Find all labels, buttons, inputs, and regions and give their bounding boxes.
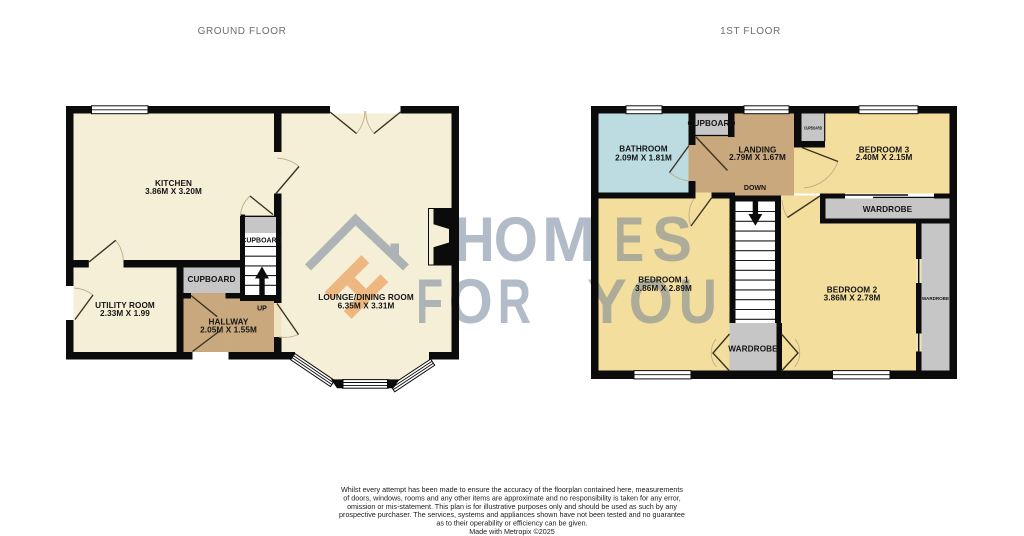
svg-text:3.86M X 3.20M: 3.86M X 3.20M: [145, 187, 202, 196]
svg-text:LOUNGE/DINING ROOM: LOUNGE/DINING ROOM: [318, 293, 414, 302]
svg-text:WARDROBE: WARDROBE: [728, 345, 778, 354]
svg-text:CUPBOARD: CUPBOARD: [187, 275, 235, 284]
svg-text:WARDROBE: WARDROBE: [922, 296, 949, 301]
svg-text:3.86M X 2.89M: 3.86M X 2.89M: [635, 284, 692, 293]
svg-text:2.05M X 1.55M: 2.05M X 1.55M: [200, 326, 257, 335]
svg-text:UP: UP: [257, 305, 267, 312]
svg-text:O: O: [494, 204, 538, 274]
svg-text:M: M: [542, 204, 596, 275]
svg-text:BATHROOM: BATHROOM: [619, 145, 667, 154]
svg-text:Made with Metropix ©2025: Made with Metropix ©2025: [469, 527, 555, 536]
svg-text:2.79M X 1.67M: 2.79M X 1.67M: [729, 153, 786, 162]
svg-text:CUPBOARD: CUPBOARD: [804, 126, 822, 131]
svg-text:GROUND FLOOR: GROUND FLOOR: [198, 26, 287, 37]
svg-text:3.86M X 2.78M: 3.86M X 2.78M: [824, 294, 881, 303]
svg-text:DOWN: DOWN: [744, 185, 766, 192]
svg-text:CUPBOARD: CUPBOARD: [241, 238, 281, 245]
svg-text:H: H: [454, 204, 494, 275]
svg-text:6.35M X 3.31M: 6.35M X 3.31M: [338, 302, 395, 311]
svg-text:WARDROBE: WARDROBE: [863, 205, 913, 214]
svg-text:CUPBOARD: CUPBOARD: [687, 119, 735, 128]
svg-text:S: S: [652, 205, 692, 276]
svg-text:2.33M X 1.99: 2.33M X 1.99: [100, 309, 150, 318]
svg-text:E: E: [614, 204, 644, 274]
svg-text:R: R: [498, 266, 531, 337]
svg-text:1ST FLOOR: 1ST FLOOR: [720, 26, 781, 37]
svg-text:F: F: [416, 266, 443, 337]
svg-text:2.09M X 1.81M: 2.09M X 1.81M: [615, 154, 672, 163]
svg-text:2.40M X 2.15M: 2.40M X 2.15M: [856, 153, 913, 162]
